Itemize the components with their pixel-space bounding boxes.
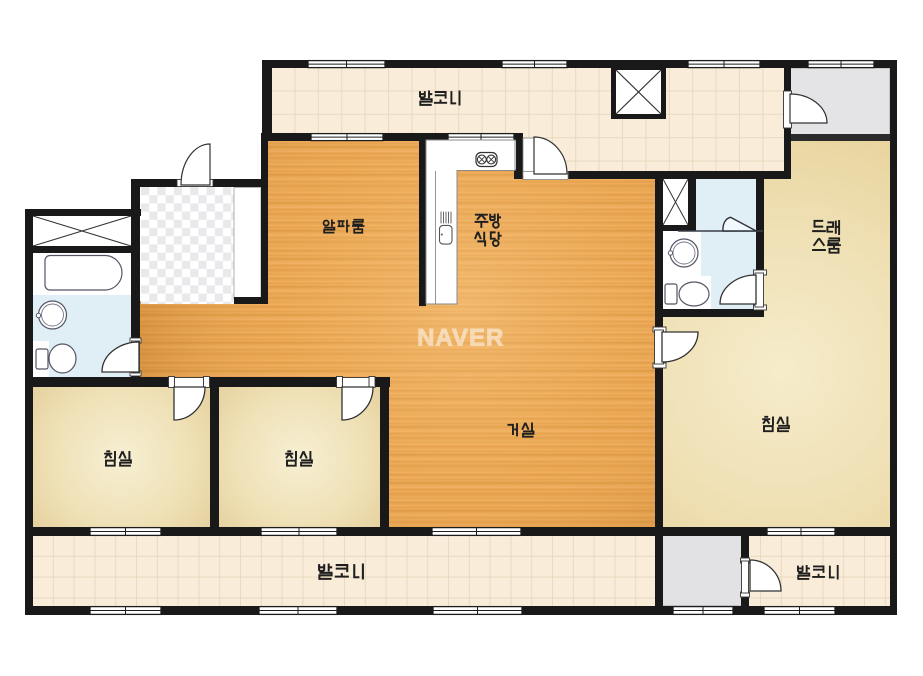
svg-text:NAVER: NAVER: [417, 325, 504, 352]
